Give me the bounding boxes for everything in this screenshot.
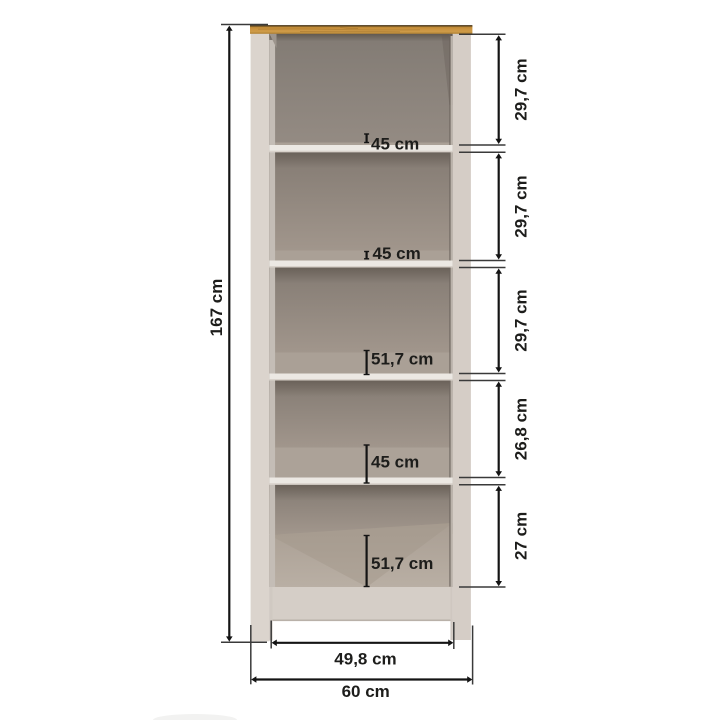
svg-text:29,7 cm: 29,7 cm — [512, 289, 531, 351]
svg-text:45 cm: 45 cm — [371, 453, 419, 472]
svg-text:29,7 cm: 29,7 cm — [512, 175, 531, 237]
svg-text:45 cm: 45 cm — [373, 244, 421, 263]
svg-text:51,7 cm: 51,7 cm — [371, 350, 433, 369]
svg-text:167 cm: 167 cm — [207, 279, 226, 337]
svg-text:27 cm: 27 cm — [512, 512, 531, 560]
svg-text:26,8 cm: 26,8 cm — [512, 398, 531, 460]
svg-text:45 cm: 45 cm — [371, 135, 419, 154]
svg-text:60 cm: 60 cm — [342, 682, 390, 701]
svg-text:49,8 cm: 49,8 cm — [334, 649, 396, 668]
svg-text:51,7 cm: 51,7 cm — [371, 554, 433, 573]
svg-text:29,7 cm: 29,7 cm — [512, 58, 531, 120]
